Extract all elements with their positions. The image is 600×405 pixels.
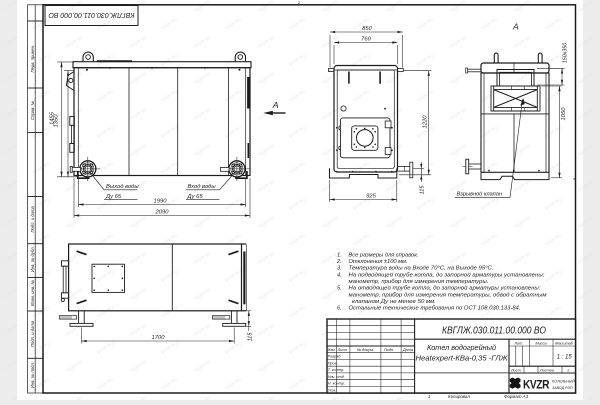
svg-text:Инв. № дубл.: Инв. № дубл. [30,246,35,272]
svg-text:клапаном Ду не менее 50 мм.: клапаном Ду не менее 50 мм. [352,299,436,305]
svg-text:850: 850 [362,26,372,32]
svg-text:Разраб.: Разраб. [328,355,342,359]
svg-text:Дата: Дата [402,348,413,352]
svg-text:Т. контр.: Т. контр. [328,368,344,372]
svg-text:1.: 1. [337,252,342,258]
svg-text:Изм: Изм [328,348,335,352]
svg-text:6.: 6. [337,306,342,312]
svg-text:№ докум.: № докум. [357,348,374,352]
svg-text:Нач. отд.: Нач. отд. [328,375,345,379]
svg-text:ЗАВОД РЭП: ЗАВОД РЭП [552,386,573,390]
svg-text:115: 115 [420,185,426,195]
svg-text:5.: 5. [337,286,342,292]
svg-text:Подп.: Подп. [384,348,394,352]
svg-text:1990: 1990 [154,199,168,205]
svg-text:Ду 65: Ду 65 [187,194,204,200]
svg-text:Копировал: Копировал [448,394,470,399]
svg-text:4.: 4. [337,272,342,278]
svg-text:Все размеры для справок.: Все размеры для справок. [349,252,419,258]
svg-text:Лит.: Лит. [514,341,524,345]
svg-text:Котел водогрейный: Котел водогрейный [427,343,496,352]
svg-text:КВГЛЖ.030.011.00.000 ВО: КВГЛЖ.030.011.00.000 ВО [48,11,134,20]
svg-text:Справ. №: Справ. № [30,101,35,120]
svg-text:На отводящей трубе котла, до з: На отводящей трубе котла, до запорной ар… [349,285,541,292]
svg-text:Пров.: Пров. [328,361,338,365]
svg-text:манометр, прибор для измерения: манометр, прибор для измерения температу… [349,279,489,285]
svg-text:115: 115 [247,332,253,342]
svg-text:А: А [272,100,279,110]
svg-text:1050: 1050 [561,107,567,121]
svg-text:760: 760 [361,37,371,43]
svg-text:KVZR: KVZR [523,380,550,392]
svg-text:Ду 65: Ду 65 [105,194,122,200]
svg-text:1700: 1700 [152,335,166,341]
svg-text:Листов: Листов [539,368,554,372]
svg-text:Масса: Масса [535,341,546,345]
svg-text:Инв. № подл.: Инв. № подл. [30,362,35,388]
svg-text:Взрывной клапан: Взрывной клапан [457,190,502,197]
svg-text:Подп. и дата: Подп. и дата [30,206,35,233]
svg-text:150х350: 150х350 [563,43,569,63]
svg-text:1350: 1350 [54,114,60,128]
svg-text:Утв.: Утв. [328,388,337,392]
svg-text:1 : 15: 1 : 15 [557,355,573,361]
svg-text:Лист: Лист [510,368,521,372]
svg-text:Температура воды на Входе 70°С: Температура воды на Входе 70°С, на Выход… [349,266,494,272]
svg-text:Вход воды: Вход воды [188,184,217,190]
svg-text:Перв. примен.: Перв. примен. [30,45,35,73]
svg-text:2.: 2. [336,259,342,265]
svg-text:КВГЛЖ.030.011.00.000 ВО: КВГЛЖ.030.011.00.000 ВО [442,325,546,336]
svg-text:Лист: Лист [337,348,348,352]
svg-text:Подп. и дата: Подп. и дата [30,320,35,347]
svg-text:Heatexpert-КВа-0,35 -ГЛЖ: Heatexpert-КВа-0,35 -ГЛЖ [416,354,509,363]
svg-text:1220: 1220 [423,115,429,129]
svg-text:Формат А3: Формат А3 [504,394,529,399]
svg-text:манометр, прибор для измерения: манометр, прибор для измерения температу… [349,292,547,298]
svg-text:КОТЕЛЬНЫЙ: КОТЕЛЬНЫЙ [552,380,575,384]
svg-text:Н. контр.: Н. контр. [328,382,345,386]
svg-text:Масштаб: Масштаб [555,341,574,345]
svg-text:2090: 2090 [155,210,170,216]
svg-text:Выход воды: Выход воды [106,184,139,190]
svg-text:925: 925 [366,193,376,199]
svg-text:А: А [512,22,519,32]
svg-text:1: 1 [567,368,569,372]
svg-text:Взам. инв. №: Взам. инв. № [30,280,35,306]
svg-text:3.: 3. [337,266,342,272]
svg-text:Отклонения ±100 мм.: Отклонения ±100 мм. [349,259,408,265]
svg-text:На подводящей трубе котла, до: На подводящей трубе котла, до запорной а… [349,271,545,278]
svg-text:Остальные технические требован: Остальные технические требования по ОСТ … [349,306,521,312]
